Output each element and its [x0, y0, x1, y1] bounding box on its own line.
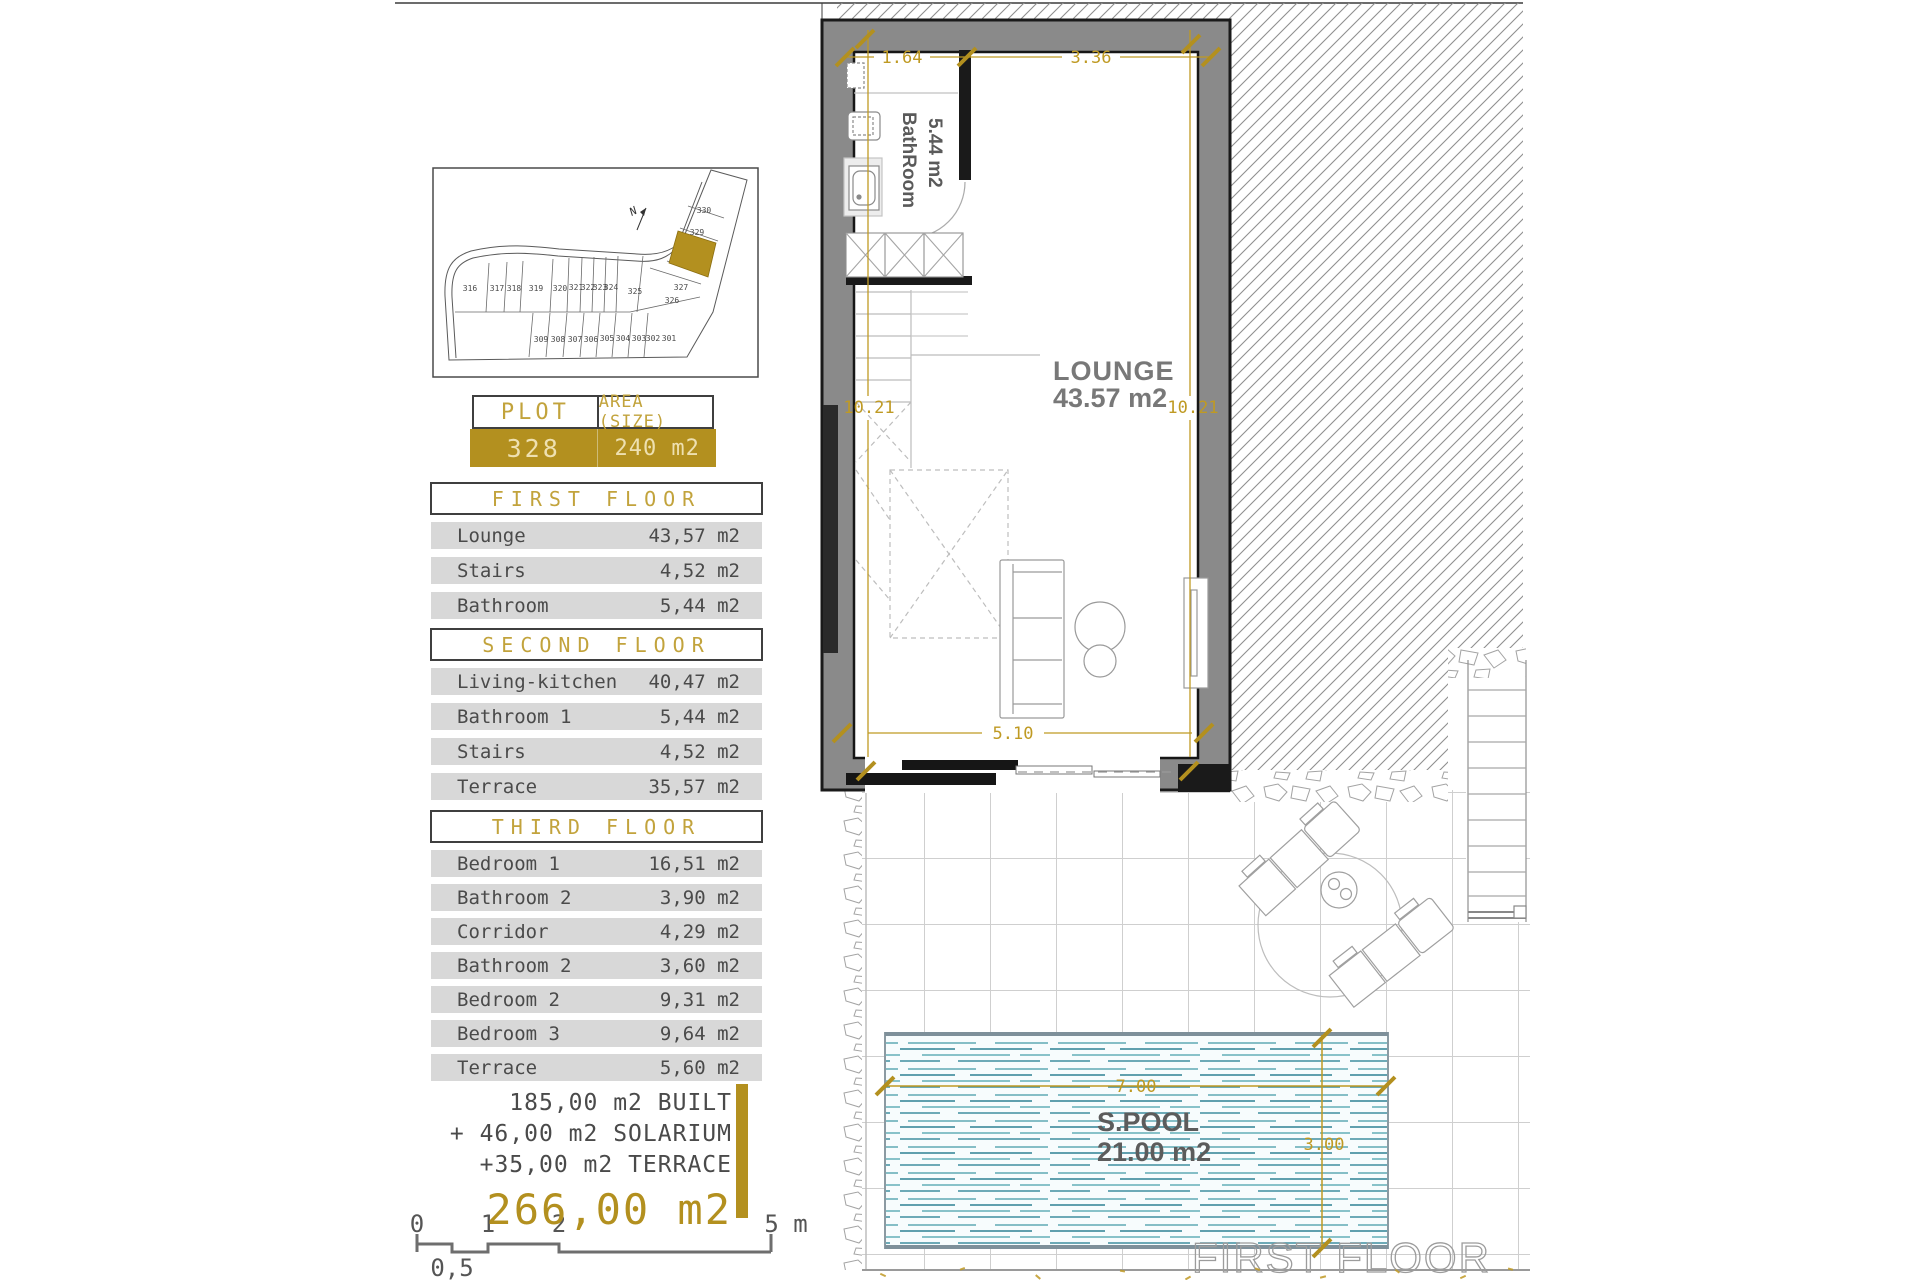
row-value: 4,52 m2: [660, 560, 740, 582]
svg-text:317: 317: [490, 284, 505, 293]
svg-text:330: 330: [697, 206, 712, 215]
svg-text:316: 316: [463, 284, 478, 293]
plot-number: 328: [470, 429, 598, 467]
svg-text:306: 306: [584, 335, 599, 344]
row-value: 3,90 m2: [660, 887, 740, 909]
svg-text:302: 302: [646, 334, 661, 343]
svg-text:303: 303: [632, 334, 647, 343]
lounge-name: LOUNGE: [1053, 356, 1175, 386]
table-row: Terrace 5,60 m2: [431, 1054, 762, 1081]
table-row: Living-kitchen 40,47 m2: [431, 668, 762, 695]
svg-text:320: 320: [553, 284, 568, 293]
row-label: Living-kitchen: [457, 671, 617, 693]
svg-text:329: 329: [690, 228, 705, 237]
exterior-stairs: [1466, 660, 1526, 922]
table-row: Bathroom 2 3,90 m2: [431, 884, 762, 911]
dim-top-left: 1.64: [882, 48, 923, 68]
table-row: Stairs 4,52 m2: [431, 738, 762, 765]
second-floor-header: SECOND FLOOR: [430, 628, 763, 661]
row-label: Terrace: [457, 1057, 537, 1079]
dim-top-right: 3.36: [1071, 48, 1112, 68]
floor-plan-drawing: 7.00 3.00 S.POOL 21.00 m2: [0, 0, 1920, 1280]
left-wall-core: [823, 405, 838, 653]
totals-block: 185,00 m2 BUILT + 46,00 m2 SOLARIUM +35,…: [420, 1088, 732, 1233]
scale-5m: 5 m: [764, 1210, 807, 1238]
glass: [1341, 889, 1352, 900]
table-row: Bedroom 1 16,51 m2: [431, 850, 762, 877]
sofa: [1000, 560, 1064, 718]
partition-wall: [959, 50, 971, 180]
pool-label: S.POOL 21.00 m2: [1097, 1107, 1211, 1167]
row-value: 5,44 m2: [660, 706, 740, 728]
table-row: Corridor 4,29 m2: [431, 918, 762, 945]
row-label: Bathroom 2: [457, 887, 571, 909]
row-label: Bedroom 2: [457, 989, 560, 1011]
floor-watermark: FIRST FLOOR: [1192, 1234, 1491, 1280]
total-solarium: + 46,00 m2 SOLARIUM: [420, 1119, 732, 1150]
glass: [1329, 879, 1340, 890]
svg-text:319: 319: [529, 284, 544, 293]
plot-area: 240 m2: [598, 429, 716, 467]
svg-text:325: 325: [628, 287, 643, 296]
side-table: [1321, 872, 1357, 908]
plot-table-header: PLOT AREA (SIZE): [472, 395, 714, 429]
svg-text:304: 304: [616, 334, 631, 343]
table-row: Stairs 4,52 m2: [431, 557, 762, 584]
table-row: Bedroom 3 9,64 m2: [431, 1020, 762, 1047]
area-header-cell: AREA (SIZE): [599, 397, 712, 427]
svg-text:326: 326: [665, 296, 680, 305]
row-value: 9,31 m2: [660, 989, 740, 1011]
row-label: Bathroom: [457, 595, 549, 617]
grand-total: 266,00 m2: [420, 1187, 732, 1233]
scale-05: 0,5: [430, 1254, 473, 1280]
section-title: THIRD FLOOR: [492, 815, 701, 839]
table-row: Bathroom 5,44 m2: [431, 592, 762, 619]
dim-bottom: 5.10: [993, 724, 1034, 744]
row-label: Stairs: [457, 741, 526, 763]
svg-text:308: 308: [551, 335, 566, 344]
row-label: Bedroom 1: [457, 853, 560, 875]
bathroom-area: 5.44 m2: [924, 118, 945, 188]
row-value: 43,57 m2: [648, 525, 740, 547]
row-value: 4,29 m2: [660, 921, 740, 943]
total-terrace: +35,00 m2 TERRACE: [420, 1150, 732, 1181]
row-value: 4,52 m2: [660, 741, 740, 763]
svg-text:324: 324: [604, 283, 619, 292]
bathroom-name: BathRoom: [898, 112, 919, 208]
row-value: 35,57 m2: [648, 776, 740, 798]
pool-area: 21.00 m2: [1097, 1137, 1211, 1167]
row-label: Lounge: [457, 525, 526, 547]
plot-table-values: 328 240 m2: [470, 429, 716, 467]
row-label: Corridor: [457, 921, 549, 943]
round-stool: [1084, 645, 1116, 677]
table-row: Lounge 43,57 m2: [431, 522, 762, 549]
dim-right: 10.21: [1167, 398, 1218, 418]
dim-left: 10.21: [843, 398, 894, 418]
row-label: Bathroom 1: [457, 706, 571, 728]
third-floor-header: THIRD FLOOR: [430, 810, 763, 843]
svg-text:327: 327: [674, 283, 689, 292]
table-row: Bedroom 2 9,31 m2: [431, 986, 762, 1013]
row-value: 3,60 m2: [660, 955, 740, 977]
row-label: Bathroom 2: [457, 955, 571, 977]
table-row: Bathroom 2 3,60 m2: [431, 952, 762, 979]
section-title: FIRST FLOOR: [492, 487, 701, 511]
corner-wall: [1178, 764, 1230, 792]
row-label: Stairs: [457, 560, 526, 582]
svg-text:318: 318: [507, 284, 522, 293]
first-floor-header: FIRST FLOOR: [430, 482, 763, 515]
svg-text:301: 301: [662, 334, 677, 343]
table-row: Bathroom 1 5,44 m2: [431, 703, 762, 730]
closet: [846, 233, 963, 277]
plot-header-cell: PLOT: [474, 397, 599, 427]
row-value: 5,44 m2: [660, 595, 740, 617]
pool-dim-height: 3.00: [1304, 1135, 1345, 1155]
svg-text:307: 307: [568, 335, 583, 344]
svg-text:305: 305: [600, 334, 615, 343]
row-value: 5,60 m2: [660, 1057, 740, 1079]
table-row: Terrace 35,57 m2: [431, 773, 762, 800]
lounge-area: 43.57 m2: [1053, 383, 1167, 413]
pool-name: S.POOL: [1097, 1107, 1199, 1137]
row-value: 9,64 m2: [660, 1023, 740, 1045]
svg-text:309: 309: [534, 335, 549, 344]
row-label: Terrace: [457, 776, 537, 798]
site-location-plan: 316 317 318 319 320 321 322 323 324 325 …: [433, 168, 758, 377]
row-value: 40,47 m2: [648, 671, 740, 693]
floorplan-sheet: 7.00 3.00 S.POOL 21.00 m2: [0, 0, 1920, 1280]
total-built: 185,00 m2 BUILT: [420, 1088, 732, 1119]
totals-accent-bar: [736, 1084, 748, 1218]
pool-dim-width: 7.00: [1116, 1077, 1157, 1097]
row-value: 16,51 m2: [648, 853, 740, 875]
section-title: SECOND FLOOR: [482, 633, 711, 657]
row-label: Bedroom 3: [457, 1023, 560, 1045]
